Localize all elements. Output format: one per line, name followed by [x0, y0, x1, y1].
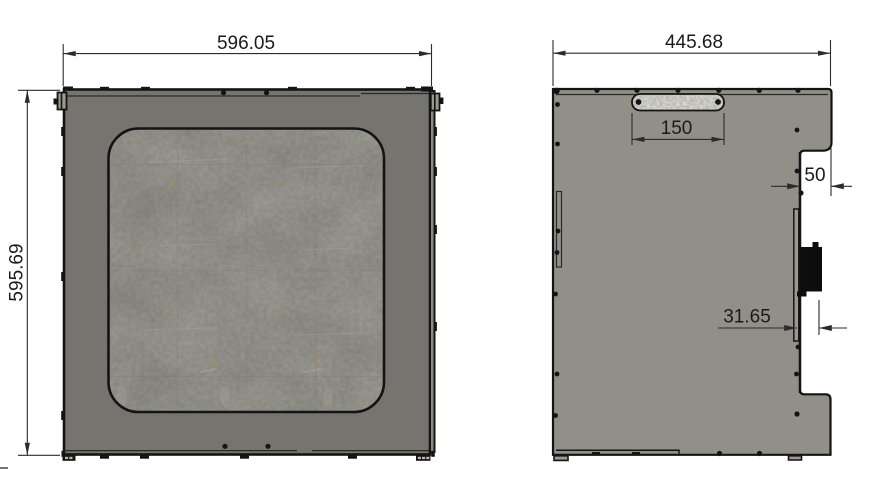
svg-text:150: 150: [661, 118, 693, 139]
svg-text:596.05: 596.05: [217, 33, 275, 54]
svg-text:445.68: 445.68: [665, 32, 723, 53]
svg-text:31.65: 31.65: [723, 307, 771, 328]
svg-text:50: 50: [804, 165, 825, 186]
svg-text:595.69: 595.69: [7, 243, 28, 301]
